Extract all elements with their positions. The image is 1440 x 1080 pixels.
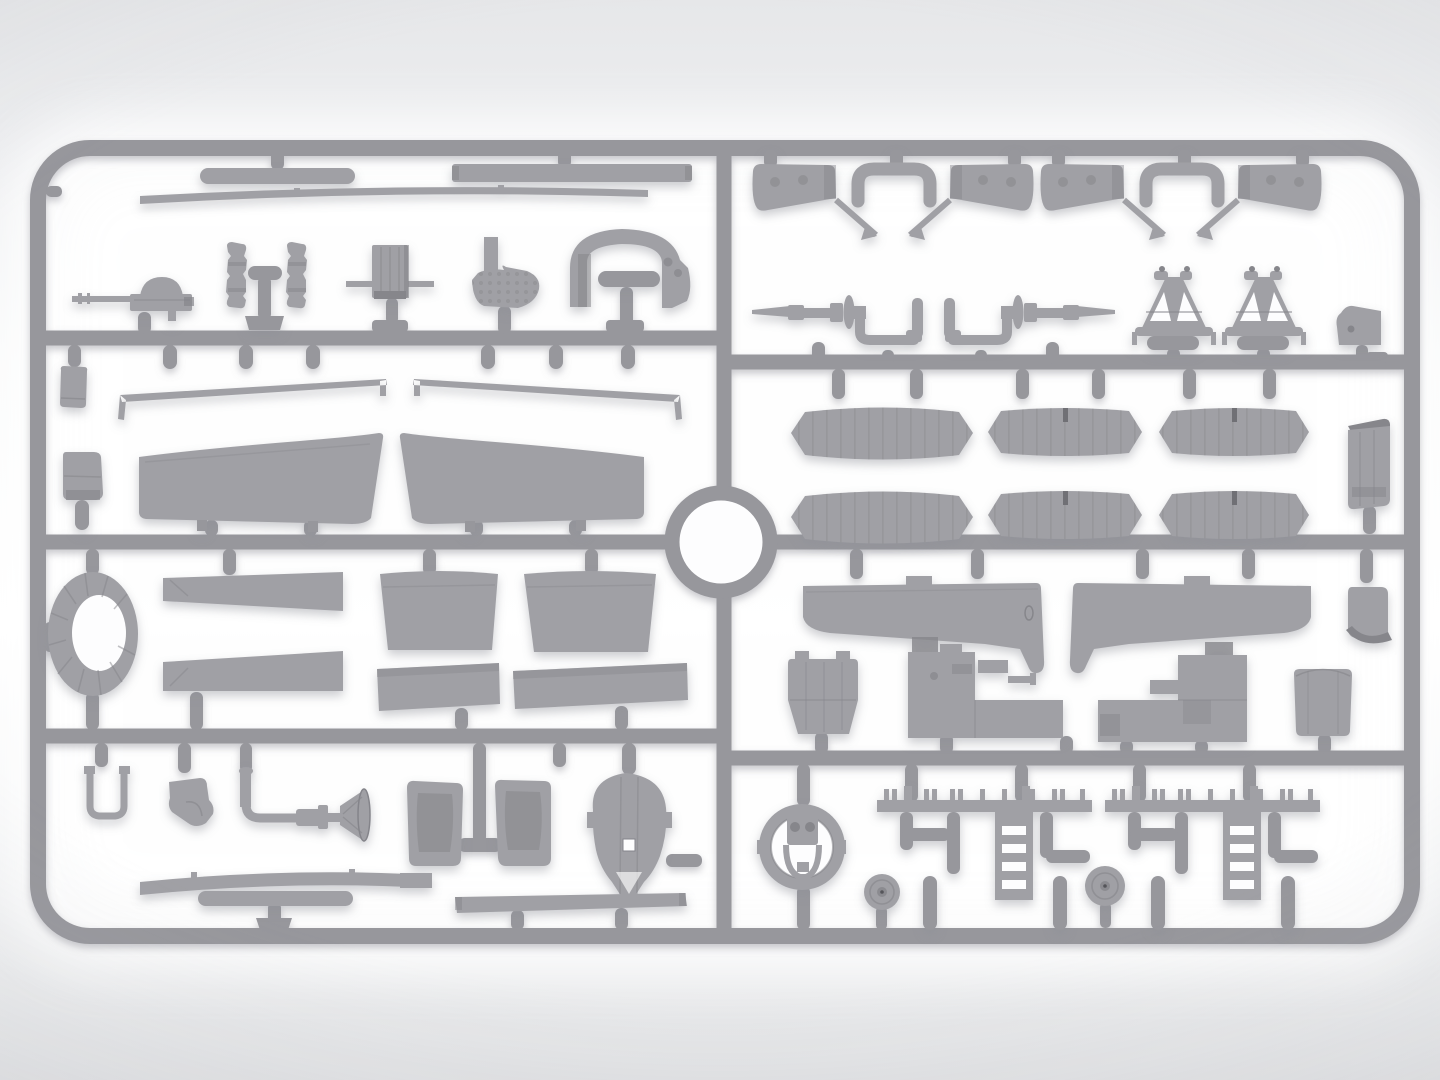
ribbed-panel-3 — [1159, 408, 1309, 456]
angled-plate — [1337, 306, 1382, 345]
sprue-render — [0, 0, 1440, 1080]
rect-panel-a — [377, 663, 500, 711]
seat-frame-a — [407, 781, 463, 866]
small-box — [60, 366, 87, 408]
wheel-disc-a — [864, 874, 900, 910]
ribbed-panel-4 — [791, 492, 973, 544]
flat-bar — [452, 164, 692, 182]
crankcase-block — [788, 651, 858, 734]
fuel-tank-box — [1348, 419, 1390, 509]
wheel-disc-b — [1085, 866, 1125, 906]
cowl-ring-oval — [48, 572, 138, 696]
flap-panel-b — [524, 571, 656, 652]
flap-panel-a — [380, 571, 498, 650]
cylinder-drum — [1294, 669, 1352, 736]
ribbed-panel-6 — [1159, 491, 1309, 539]
ribbed-panel-1 — [791, 408, 973, 460]
seat-frame-b — [495, 780, 551, 866]
fairing-boot — [1346, 587, 1392, 643]
ribbed-panel-2 — [988, 408, 1142, 456]
capsule-bar-short — [198, 891, 353, 906]
capsule-bar — [200, 168, 355, 184]
kit-sprue-photo — [0, 0, 1440, 1080]
ribbed-panel-5 — [988, 491, 1142, 539]
